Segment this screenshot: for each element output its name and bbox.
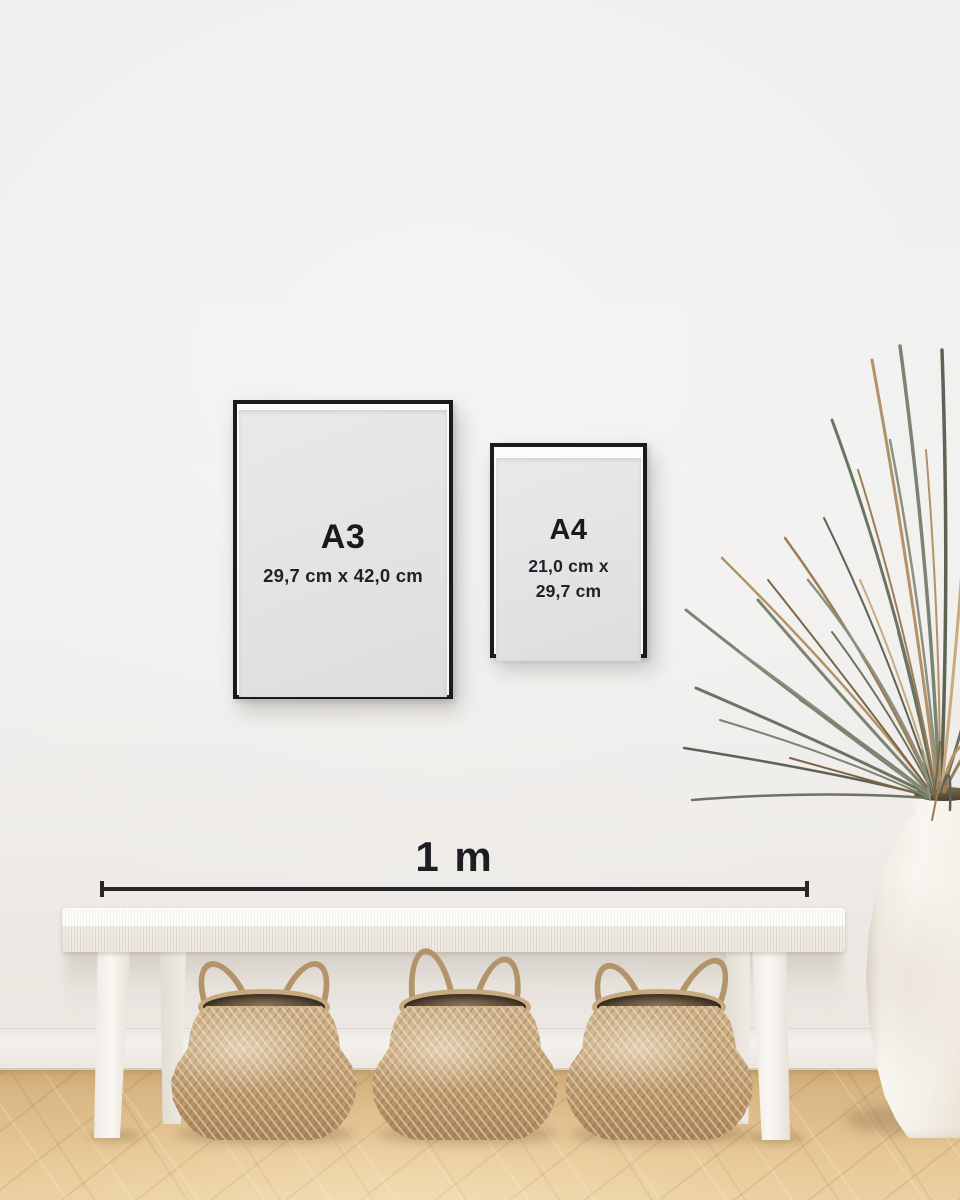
frame-a3-dimensions: 29,7 cm x 42,0 cm — [263, 565, 423, 587]
frame-a4-dimensions-line1: 21,0 cm x — [528, 554, 609, 579]
size-guide-mockup-scene: A3 29,7 cm x 42,0 cm A4 21,0 cm x 29,7 c… — [0, 0, 960, 1200]
basket-2-body — [372, 1006, 558, 1140]
basket-1-body — [171, 1006, 357, 1140]
scale-bar-tick-left — [100, 881, 104, 897]
frame-a4-size-label: A4 — [549, 516, 587, 545]
frame-a3-size-label: A3 — [321, 520, 365, 554]
frame-a4-dimensions-line2: 29,7 cm — [528, 579, 609, 604]
basket-3-body — [565, 1006, 753, 1140]
bench-top — [62, 908, 845, 952]
scale-bar-label: 1 m — [102, 835, 807, 879]
frame-a3: A3 29,7 cm x 42,0 cm — [233, 400, 453, 699]
scale-bar-tick-right — [805, 881, 809, 897]
frame-a3-paper: A3 29,7 cm x 42,0 cm — [239, 410, 447, 697]
frame-a4-dimensions: 21,0 cm x 29,7 cm — [528, 554, 609, 604]
palm-plant — [600, 280, 960, 840]
scale-bar-line — [102, 887, 807, 891]
